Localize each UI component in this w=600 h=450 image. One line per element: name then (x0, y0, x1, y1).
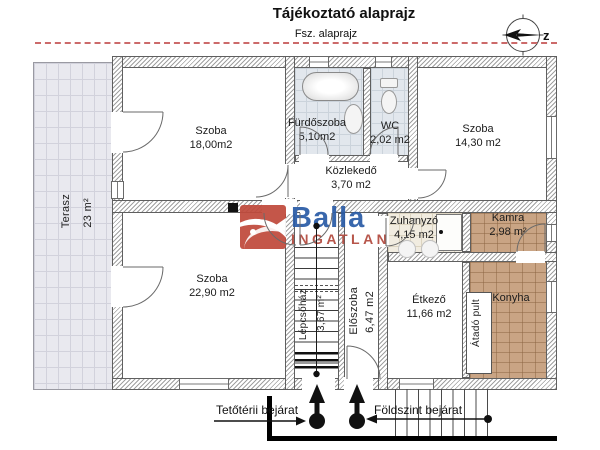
wall-outer-top (112, 56, 557, 68)
attic-entrance-arrow (214, 417, 306, 426)
room-label-eloszoba-area: 6,47 m2 (364, 291, 376, 333)
door-opening-bath (299, 154, 329, 163)
door-opening-terasz-szoba22 (111, 266, 124, 307)
wc-tank-icon (380, 78, 398, 88)
room-label-wc: WC2,02 m2 (370, 119, 410, 147)
shower-door-handle (439, 230, 443, 234)
room-label-konyha: Konyha (492, 291, 529, 305)
door-opening-szoba14 (407, 168, 419, 199)
window-right-kamra (546, 224, 557, 242)
room-label-zuhanyzo: Zuhanyzó4,15 m2 (390, 214, 438, 242)
compass-label: z (543, 28, 550, 43)
floor-plan-page: Tájékoztató alaprajz Fsz. alaprajz z (0, 0, 600, 450)
door-arc-terasz-szoba22 (123, 267, 163, 307)
door-opening-wc (370, 154, 398, 163)
balla-logo-text: Balla INGATLAN (291, 205, 390, 249)
room-label-lepcsohaz-name: Lépcsőház (298, 289, 309, 340)
room-label-kozlekedo: Közlekedő3,70 m2 (325, 164, 376, 192)
compass-icon: z (496, 9, 554, 61)
room-label-etkezo: Étkező11,66 m2 (406, 293, 451, 321)
shower-stall-icon (436, 214, 462, 251)
door-arc-szoba14 (418, 170, 446, 198)
floor-terasz (33, 62, 121, 390)
label-attic-entrance: Tetőtérii bejárat (216, 403, 298, 417)
label-ground-entrance: Földszint bejárat (374, 403, 462, 417)
window-right-konyha (546, 281, 557, 313)
wall-outer-right (546, 56, 557, 390)
bath-sink-icon (344, 104, 363, 134)
page-title: Tájékoztató alaprajz (144, 5, 544, 22)
door-opening-entry-stairwell (302, 377, 335, 391)
balla-logo: Balla INGATLAN (240, 205, 390, 249)
door-opening-terasz-szoba18 (111, 112, 124, 153)
door-arc-terasz-szoba18 (123, 112, 163, 152)
balla-brand: Balla (291, 205, 390, 232)
window-top-wc (375, 56, 392, 68)
room-label-lepcsohaz-area: 3,67 m² (316, 295, 327, 331)
bathtub-icon (302, 72, 359, 101)
shower-basin-1 (398, 240, 416, 258)
room-label-eloszoba-name: Előszoba (348, 287, 360, 335)
door-opening-entry-eloszoba (344, 377, 373, 391)
room-label-szoba-18: Szoba18,00m2 (190, 124, 233, 152)
balla-house-icon (240, 205, 286, 249)
door-opening-kamra (516, 251, 545, 263)
chimney-marker (228, 203, 238, 212)
stair-treads-lower (295, 352, 338, 373)
room-label-kamra: Kamra2,98 m² (489, 211, 526, 239)
room-label-szoba-14: Szoba14,30 m2 (455, 122, 501, 150)
room-label-furdoszoba: Fürdőszoba5,10m2 (288, 116, 346, 144)
wall-zuhanyzo-kamra (462, 213, 471, 252)
room-label-szoba-22: Szoba22,90 m2 (189, 272, 235, 300)
balla-subbrand: INGATLAN (291, 231, 390, 247)
wall-outer-left (112, 56, 123, 390)
room-label-atado-pult: Átadó pult (471, 299, 482, 347)
window-right-szoba14 (546, 116, 557, 159)
boundary-dashed-line (35, 42, 557, 44)
door-arc-entry-eloszoba (347, 346, 380, 379)
page-subtitle: Fsz. alaprajz (126, 28, 526, 40)
entrance-path-horizontal (267, 436, 557, 441)
window-top-bath (309, 56, 329, 68)
stair-cut-line-1 (295, 285, 338, 286)
wc-bowl-icon (381, 90, 397, 114)
room-label-terasz-area: 23 m² (82, 198, 94, 228)
shower-basin-2 (421, 240, 439, 258)
window-left-szoba18 (111, 181, 124, 199)
door-opening-szoba18-kozlekedo (284, 164, 296, 198)
window-bottom-szoba22 (179, 378, 229, 390)
room-label-terasz-name: Terasz (60, 194, 72, 228)
